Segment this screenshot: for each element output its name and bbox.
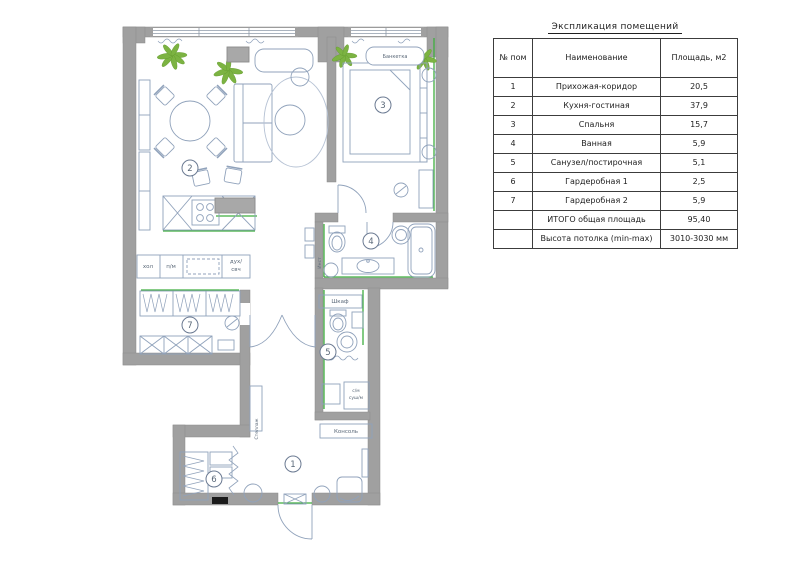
tv-console (227, 47, 249, 62)
console-label: Консоль (334, 429, 358, 435)
table-total-row: ИТОГО общая площадь 95,40 (494, 211, 738, 230)
col-header-area: Площадь, м2 (661, 39, 738, 78)
sink (337, 332, 357, 352)
total-value: 95,40 (661, 211, 738, 230)
oven-label-top: дух/ (230, 259, 242, 265)
room-area: 2,5 (661, 173, 738, 192)
svg-text:2: 2 (187, 164, 192, 174)
room-num: 1 (494, 78, 533, 97)
cabinet (322, 384, 340, 404)
kitchen-island (163, 166, 255, 230)
col-header-name: Наименование (533, 39, 661, 78)
coffee-table (275, 105, 305, 135)
room-badge-2: 2 (182, 160, 198, 176)
table-ceiling-row: Высота потолка (min-max) 3010-3030 мм (494, 230, 738, 249)
total-label: ИТОГО общая площадь (533, 211, 661, 230)
dresser (419, 170, 433, 208)
room-badge-1: 1 (285, 456, 301, 472)
room-num: 4 (494, 135, 533, 154)
table-row: 3 Спальня 15,7 (494, 116, 738, 135)
explication-panel: Экспликация помещений № пом Наименование… (493, 14, 737, 249)
room7-door-gap (240, 303, 250, 325)
dishwasher-label: п/м (166, 264, 176, 270)
table-title: Экспликация помещений (548, 22, 683, 34)
oven-label-bottom: свч (231, 267, 241, 273)
svg-text:7: 7 (187, 321, 192, 331)
shelving-label: Стеллаж (254, 418, 260, 439)
shelving-unit (139, 80, 150, 230)
chair (206, 85, 227, 106)
svg-text:6: 6 (211, 475, 216, 485)
wall-cabinet (305, 228, 314, 241)
table-row: 6 Гардеробная 1 2,5 (494, 173, 738, 192)
total-num-empty (494, 211, 533, 230)
installation-label: Инст (317, 257, 323, 269)
table-row: 1 Прихожая-коридор 20,5 (494, 78, 738, 97)
rug (264, 77, 328, 167)
washer-label: с/м (352, 388, 359, 394)
console-table (362, 449, 368, 477)
svg-text:3: 3 (380, 101, 385, 111)
drawer-units (140, 336, 234, 354)
room-badge-5: 5 (320, 344, 336, 360)
room-name: Спальня (533, 116, 661, 135)
bathtub (408, 224, 435, 277)
curtain-divider (229, 446, 238, 495)
room-name: Кухня-гостиная (533, 97, 661, 116)
wardrobe-rails (140, 291, 240, 316)
chair (154, 85, 175, 106)
wall-cabinet (352, 312, 363, 328)
threshold-mark (212, 497, 228, 504)
room-num: 7 (494, 192, 533, 211)
chair (206, 137, 227, 158)
corridor-double-doors (250, 315, 315, 347)
windows (150, 27, 424, 37)
toilet (330, 310, 346, 332)
stool (324, 263, 338, 277)
closet-label: Шкаф (331, 299, 349, 305)
explication-table: № пом Наименование Площадь, м2 1 Прихожа… (493, 38, 738, 249)
room-badge-4: 4 (363, 233, 379, 249)
room-area: 37,9 (661, 97, 738, 116)
ceiling-label: Высота потолка (min-max) (533, 230, 661, 249)
fridge-label: хол (143, 264, 154, 270)
dryer-label: суш/м (349, 395, 363, 401)
vanity (342, 258, 394, 274)
dining-table (154, 85, 227, 158)
chair (154, 137, 175, 158)
room-area: 5,9 (661, 192, 738, 211)
room-name: Ванная (533, 135, 661, 154)
room-name: Санузел/постирочная (533, 154, 661, 173)
room-area: 15,7 (661, 116, 738, 135)
room-name: Гардеробная 2 (533, 192, 661, 211)
col-header-num: № пом (494, 39, 533, 78)
room-num: 2 (494, 97, 533, 116)
room-name: Гардеробная 1 (533, 173, 661, 192)
room-badge-7: 7 (182, 317, 198, 333)
bench-label: Банкетка (383, 54, 408, 60)
table-row: 4 Ванная 5,9 (494, 135, 738, 154)
room-area: 5,9 (661, 135, 738, 154)
svg-text:5: 5 (325, 348, 330, 358)
svg-text:4: 4 (368, 237, 373, 247)
room-num: 3 (494, 116, 533, 135)
bar-stool (224, 166, 242, 184)
ceiling-value: 3010-3030 мм (661, 230, 738, 249)
ceiling-num-empty (494, 230, 533, 249)
sofa (234, 84, 272, 162)
toilet (329, 226, 345, 252)
bedroom-door (338, 185, 366, 213)
radiator-marks (158, 39, 410, 43)
table-header-row: № пом Наименование Площадь, м2 (494, 39, 738, 78)
room-badge-3: 3 (375, 97, 391, 113)
room-area: 5,1 (661, 154, 738, 173)
wall-cabinet (305, 245, 314, 258)
entrance-door (278, 494, 312, 539)
room-name: Прихожая-коридор (533, 78, 661, 97)
table-row: 2 Кухня-гостиная 37,9 (494, 97, 738, 116)
floor-plan: 1 2 3 4 5 6 7 хол п/м дух/ свч Шкаф Инст… (0, 0, 480, 565)
room-num: 6 (494, 173, 533, 192)
room-area: 20,5 (661, 78, 738, 97)
washbasin (392, 226, 410, 244)
room-badge-6: 6 (206, 471, 222, 487)
window-bench (255, 49, 313, 72)
table-row: 5 Санузел/постирочная 5,1 (494, 154, 738, 173)
room-num: 5 (494, 154, 533, 173)
plant-icon (157, 43, 187, 71)
table-row: 7 Гардеробная 2 5,9 (494, 192, 738, 211)
svg-text:1: 1 (290, 460, 295, 470)
